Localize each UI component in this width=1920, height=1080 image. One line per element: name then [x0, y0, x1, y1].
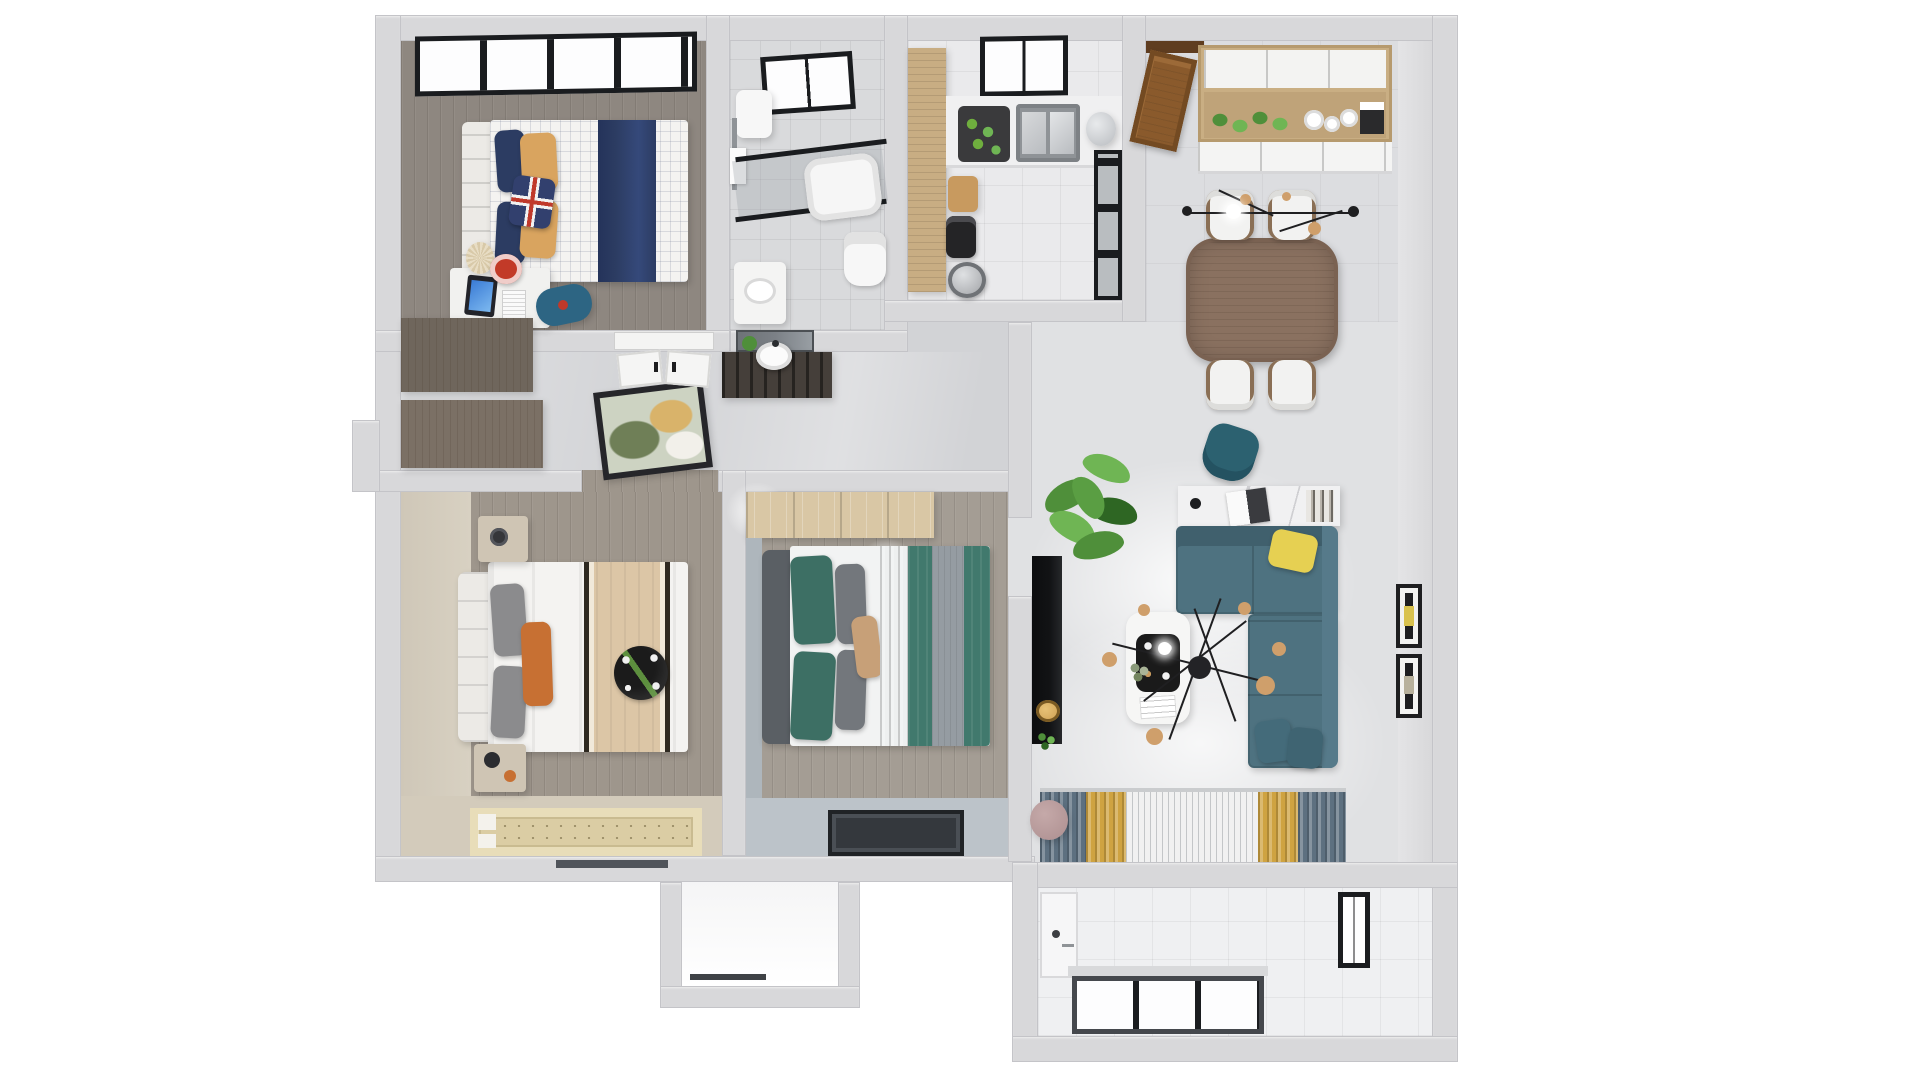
- hanging-plants: [1206, 108, 1298, 136]
- wall-balcony-bottom: [1012, 1036, 1458, 1062]
- left-wall-bump-out: [352, 420, 380, 492]
- chandelier-bulb-glow: [1226, 204, 1241, 219]
- kitchen-sink-basin-left: [1022, 112, 1046, 154]
- kids-monitor-screen: [468, 280, 493, 312]
- balcony-sliding-windows: [1072, 976, 1264, 1034]
- kitchen-glass-door: [1094, 150, 1122, 300]
- teal-pillow-2: [790, 651, 837, 741]
- washstand-plant: [742, 336, 757, 351]
- bump-out-dark-edge: [690, 974, 766, 980]
- rug-white-mat-1: [478, 814, 496, 830]
- teal-bed-runner: [932, 546, 964, 746]
- master-lamp-bottom: [484, 752, 500, 768]
- teal-bedroom-low-window-panel: [828, 810, 964, 856]
- shelf-dish-1: [1304, 110, 1324, 130]
- wall-right: [1432, 15, 1458, 1062]
- shelf-dish-2: [1324, 116, 1340, 132]
- chandelier-bulb-glow: [1158, 642, 1171, 655]
- coffee-machine: [946, 216, 976, 258]
- kitchen-sink-basin-right: [1050, 112, 1074, 154]
- laundry-cabinet-knob: [1052, 930, 1060, 938]
- chandelier-sphere: [1308, 222, 1321, 235]
- wall-kitchen-dining: [1122, 15, 1146, 322]
- chandelier-sphere: [1282, 192, 1291, 201]
- living-large-plant: [1038, 448, 1140, 564]
- dining-chandelier: [1186, 194, 1358, 246]
- bedroom-teal-door-gap-floor: [1008, 518, 1032, 596]
- cooking-pot: [948, 262, 986, 298]
- hall-artwork-canvas: [600, 386, 707, 473]
- master-nightstand-bottom: [474, 744, 526, 792]
- toilet: [844, 232, 886, 286]
- curtain-gold-right: [1258, 792, 1298, 862]
- balcony-side-window: [1338, 892, 1370, 968]
- sofa-right-armrest: [1322, 526, 1338, 768]
- dining-lower-cabinet: [1198, 142, 1392, 174]
- living-sputnik-chandelier: [1100, 598, 1290, 748]
- chandelier-sphere: [1240, 194, 1251, 205]
- laundry-cabinet-handle: [1062, 944, 1074, 947]
- entry-double-door-on-wall: [614, 332, 714, 350]
- apartment-floorplan-render: [0, 0, 1920, 1080]
- teal-pillow-1: [790, 555, 837, 645]
- dining-table: [1186, 238, 1338, 362]
- wall-teal-living-lower: [1008, 596, 1032, 862]
- teal-bedroom-wall-face: [746, 538, 762, 798]
- kids-desk-chair-red: [490, 254, 522, 284]
- teal-sheet-fold: [880, 546, 910, 746]
- chaise-pillow-2: [1286, 726, 1324, 769]
- teal-bedroom-wardrobe: [746, 492, 934, 538]
- dining-chair-sw: [1206, 360, 1254, 410]
- wall-frame-2-art: [1404, 676, 1414, 694]
- bump-out-wall-bottom: [660, 986, 860, 1008]
- wall-bottom-left: [375, 856, 1035, 882]
- rug-white-mat-2: [478, 834, 496, 848]
- bump-out-floor: [682, 882, 838, 986]
- kitchen-window: [980, 35, 1068, 97]
- washstand-faucet: [772, 340, 779, 347]
- kitchen-pantry-cabinet: [908, 48, 946, 292]
- curtain-slate-right: [1298, 792, 1346, 862]
- master-nightstand-decor: [504, 770, 516, 782]
- chandelier-sphere: [1272, 642, 1286, 656]
- wall-balcony-left: [1012, 862, 1038, 1062]
- chandelier-center-sphere: [1188, 656, 1211, 679]
- wall-hall-master: [375, 470, 582, 492]
- kids-wood-dresser: [401, 318, 533, 392]
- chandelier-sphere: [1348, 206, 1359, 217]
- curtain-gold-left: [1086, 792, 1126, 862]
- master-lamp-top: [490, 528, 508, 546]
- console-books: [1306, 490, 1334, 522]
- master-bottom-wall-dark-seam: [556, 860, 668, 868]
- vegetable-basket: [958, 106, 1010, 162]
- closet-wood-cabinet: [401, 400, 543, 468]
- master-tatami-rug: [470, 808, 702, 856]
- kids-bed-navy-blanket: [598, 120, 656, 282]
- cutting-board: [948, 176, 978, 212]
- vanity-basin: [744, 278, 776, 304]
- teal-bed-headboard: [762, 550, 790, 744]
- console-cup: [1190, 498, 1201, 509]
- chandelier-sphere: [1138, 604, 1150, 616]
- chandelier-sphere: [1182, 206, 1192, 216]
- bathroom-skylight: [760, 51, 856, 115]
- gold-pendant-lamp: [1036, 700, 1060, 722]
- union-jack-pillow: [508, 174, 557, 229]
- dining-right-wall-face: [1398, 41, 1432, 862]
- chandelier-sphere: [1238, 602, 1251, 615]
- console-laptop: [1226, 487, 1270, 526]
- kids-bean-bag-logo: [558, 300, 568, 310]
- shelf-black-item: [1360, 102, 1384, 134]
- wall-kitchen-bottom: [884, 300, 1146, 322]
- tv-side-plant: [1034, 728, 1060, 754]
- round-side-table: [1030, 800, 1068, 840]
- kitchen-kettle: [1086, 112, 1116, 146]
- entry-door-handle-left: [654, 362, 658, 372]
- wall-teal-living-upper: [1008, 322, 1032, 518]
- chandelier-sphere: [1256, 676, 1275, 695]
- cabinet-door-fronts: [1204, 50, 1386, 88]
- bathtub: [802, 152, 883, 223]
- bathroom-water-heater: [736, 90, 772, 138]
- curtain-sheer: [1126, 792, 1258, 862]
- master-decor-plate: [614, 646, 668, 700]
- master-pillow-orange: [521, 622, 554, 707]
- master-headboard: [458, 572, 488, 742]
- wall-living-balcony: [1030, 862, 1458, 888]
- chandelier-sphere: [1102, 652, 1117, 667]
- entry-door-handle-right: [672, 362, 676, 372]
- shelf-dish-3: [1340, 109, 1358, 127]
- wall-kids-bath: [706, 15, 730, 352]
- wall-frame-1-art: [1404, 606, 1414, 626]
- chandelier-sphere: [1146, 728, 1163, 745]
- kids-window: [415, 32, 697, 97]
- balcony-window-sill: [1068, 966, 1268, 976]
- dining-chair-se: [1268, 360, 1316, 410]
